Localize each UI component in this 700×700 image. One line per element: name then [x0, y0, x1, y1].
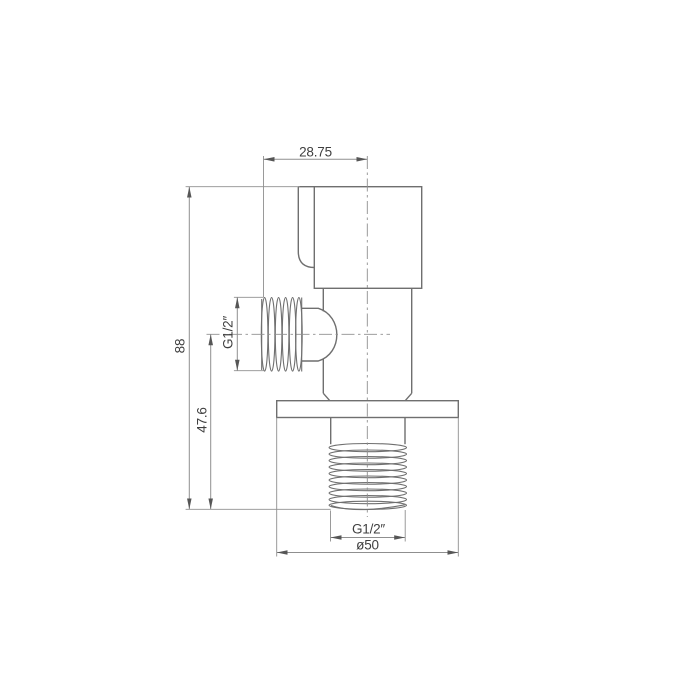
dim-label-side-thread: G1/2″	[221, 316, 236, 349]
dim-label-top-width: 28.75	[299, 145, 332, 160]
dim-label-flange-diameter: ø50	[356, 538, 379, 553]
part-outline	[261, 187, 458, 510]
dimensions: 28.75 88 47.6 G1/2″ G1/2″	[173, 145, 459, 557]
dimension-overall-height: 88	[173, 187, 331, 510]
valve-handle-profile	[298, 187, 314, 268]
bottom-inlet-thread	[329, 444, 406, 510]
body-chamfer-right	[405, 393, 412, 400]
body-chamfer-left	[323, 393, 330, 400]
valve-bonnet-cap	[314, 187, 421, 289]
angle-valve-technical-drawing: 28.75 88 47.6 G1/2″ G1/2″	[0, 0, 700, 700]
drawing-canvas: 28.75 88 47.6 G1/2″ G1/2″	[0, 0, 700, 700]
dim-label-overall-height: 88	[173, 339, 188, 354]
dim-label-bottom-thread: G1/2″	[352, 522, 385, 537]
dimension-top-width: 28.75	[264, 145, 368, 298]
dim-label-outlet-height: 47.6	[195, 407, 210, 432]
dimension-outlet-center-height: 47.6	[195, 334, 211, 509]
